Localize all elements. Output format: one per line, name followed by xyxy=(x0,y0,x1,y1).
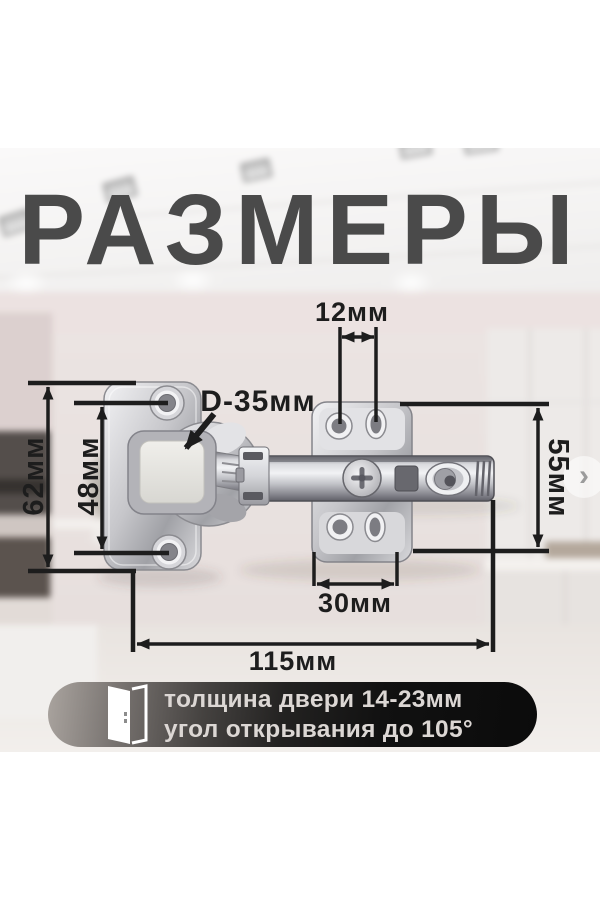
built-in-oven xyxy=(0,431,50,514)
oven-control-panel xyxy=(0,479,46,494)
open-door-icon xyxy=(94,684,148,746)
counter-edge xyxy=(485,558,600,570)
opening-angle-text: угол открывания до 105° xyxy=(164,715,473,745)
cabinet-gap xyxy=(0,514,50,537)
product-card: › РАЗМЕРЫ xyxy=(0,0,600,900)
banner-text: толщина двери 14-23мм угол открывания до… xyxy=(164,685,473,744)
plant-blur xyxy=(84,446,134,529)
chevron-right-icon: › xyxy=(579,459,589,492)
door-thickness-text: толщина двери 14-23мм xyxy=(164,685,473,715)
left-cabinet-tower xyxy=(0,313,52,433)
carousel-next-button[interactable]: › xyxy=(563,456,600,498)
countertop-left xyxy=(52,519,198,529)
info-banner: толщина двери 14-23мм угол открывания до… xyxy=(48,682,537,747)
page-title: РАЗМЕРЫ xyxy=(0,155,600,305)
cabinet-seam xyxy=(487,401,600,403)
built-in-oven-lower xyxy=(0,537,50,597)
